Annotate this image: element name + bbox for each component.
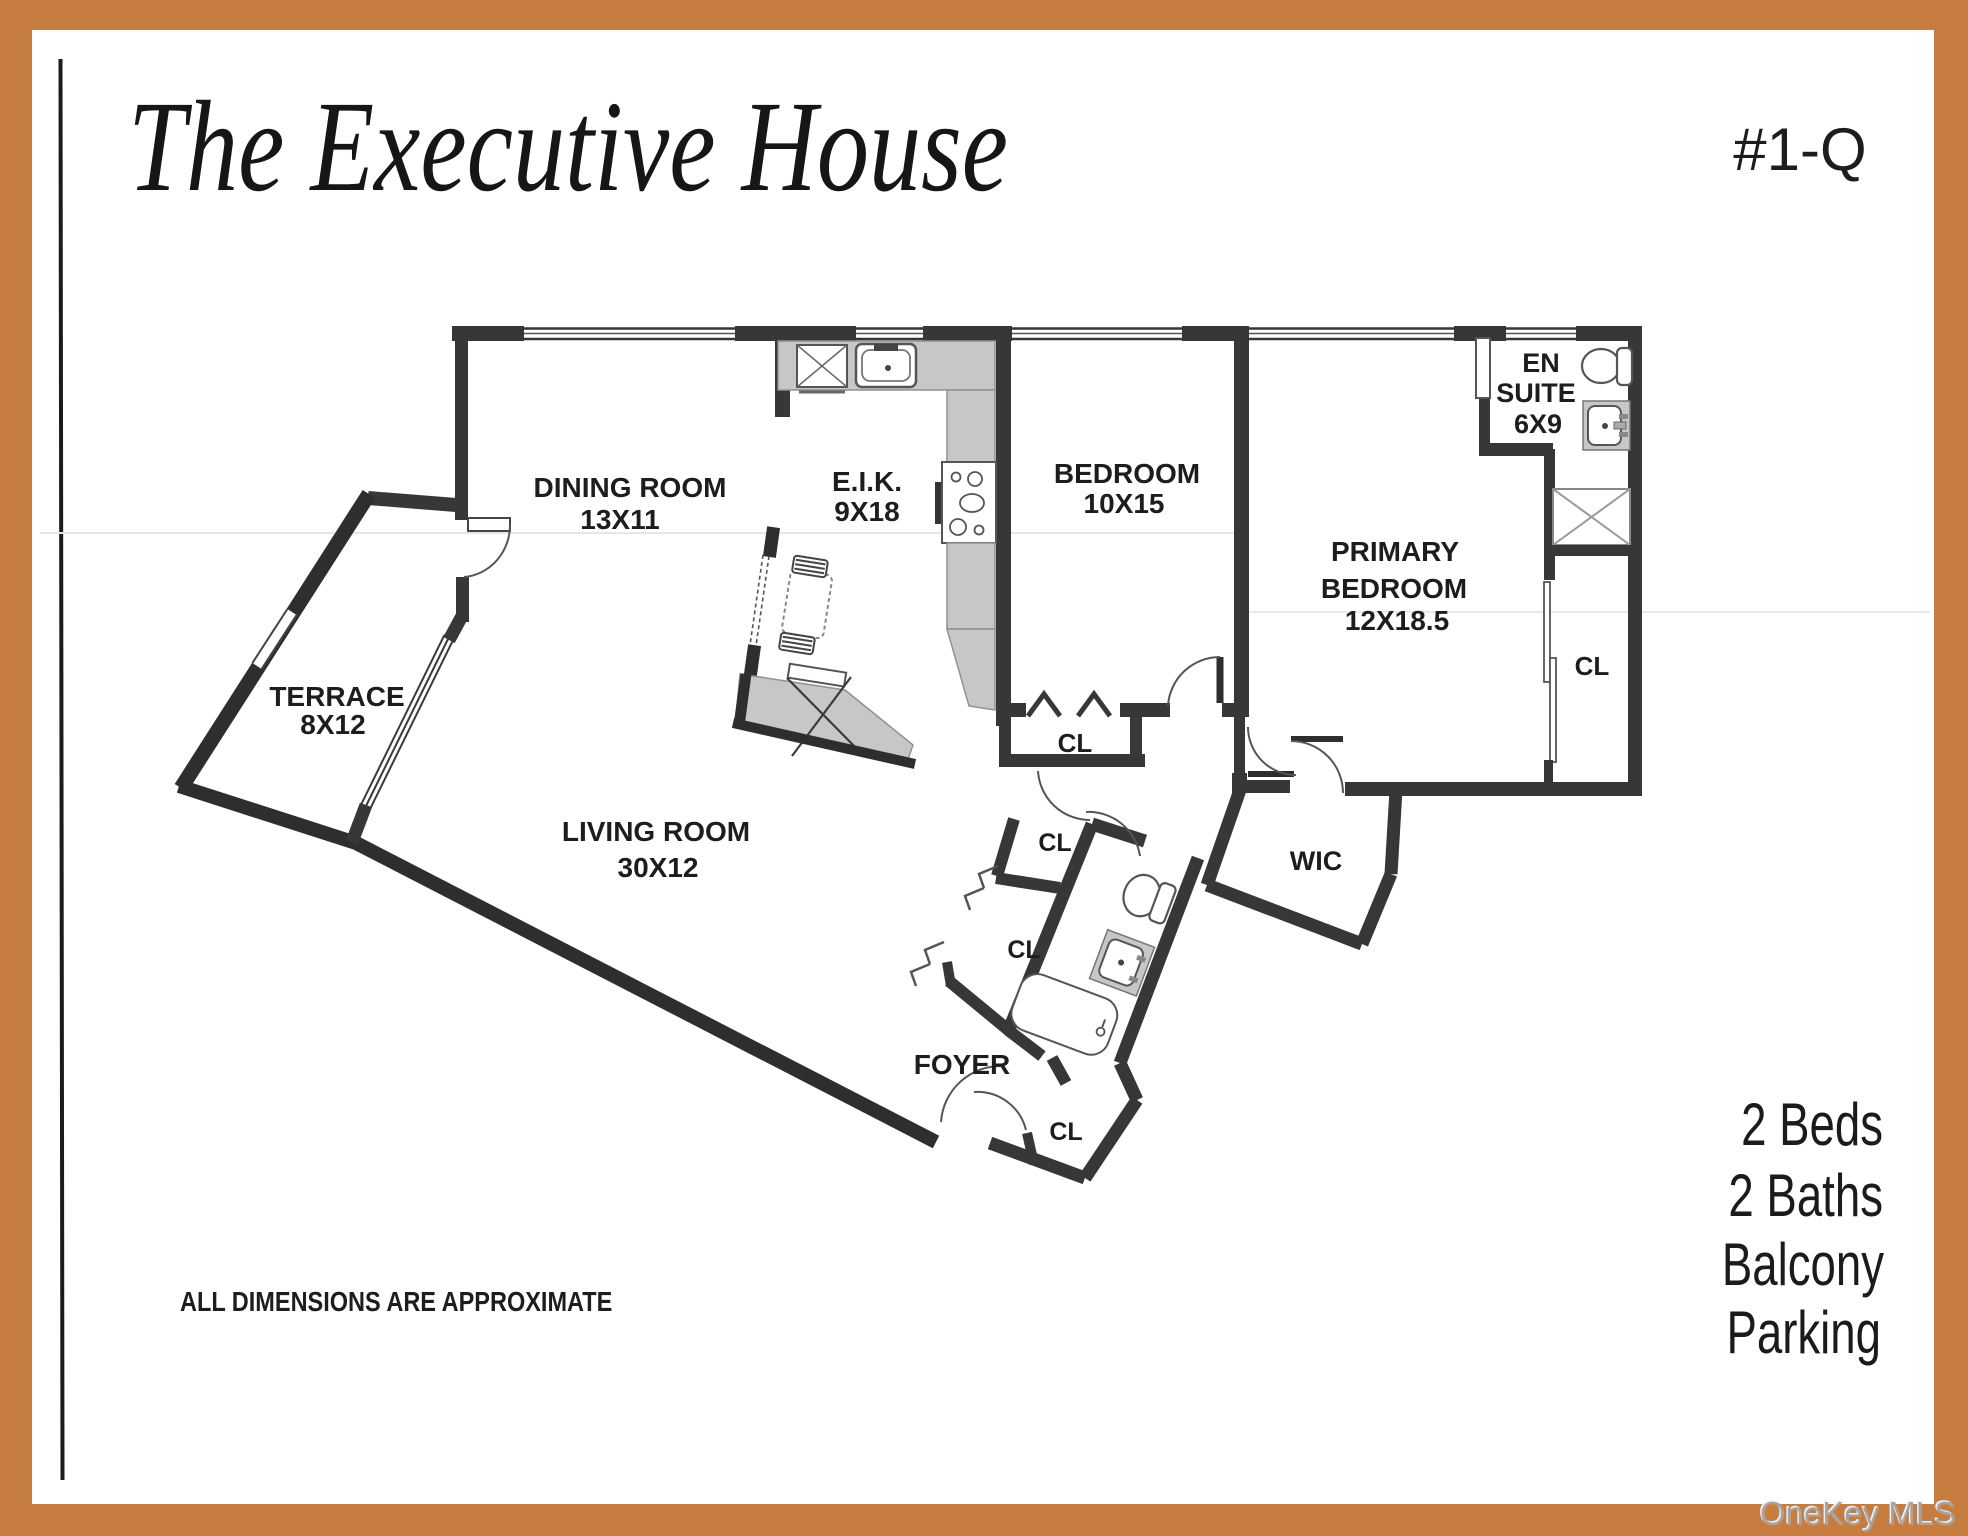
svg-text:EN: EN	[1522, 348, 1560, 378]
svg-text:BEDROOM: BEDROOM	[1321, 573, 1467, 604]
svg-text:CL: CL	[1575, 651, 1610, 681]
svg-text:#1-Q: #1-Q	[1733, 116, 1866, 183]
svg-text:DINING ROOM: DINING ROOM	[534, 472, 727, 503]
svg-text:LIVING ROOM: LIVING ROOM	[562, 816, 750, 847]
svg-text:CL: CL	[1049, 1118, 1082, 1146]
svg-text:Parking: Parking	[1726, 1300, 1881, 1366]
svg-text:30X12: 30X12	[618, 852, 699, 883]
svg-text:BEDROOM: BEDROOM	[1054, 458, 1200, 489]
svg-text:WIC: WIC	[1290, 846, 1342, 876]
svg-text:10X15: 10X15	[1084, 488, 1165, 519]
svg-text:FOYER: FOYER	[914, 1049, 1010, 1080]
svg-text:PRIMARY: PRIMARY	[1331, 536, 1459, 567]
svg-text:ALL DIMENSIONS ARE APPROXIMATE: ALL DIMENSIONS ARE APPROXIMATE	[180, 1287, 612, 1317]
svg-text:CL: CL	[1038, 829, 1071, 857]
svg-text:CL: CL	[1007, 936, 1040, 964]
svg-text:12X18.5: 12X18.5	[1345, 605, 1449, 636]
svg-text:8X12: 8X12	[300, 709, 365, 740]
svg-text:9X18: 9X18	[834, 496, 899, 527]
svg-text:CL: CL	[1058, 728, 1093, 758]
svg-text:SUITE: SUITE	[1496, 378, 1576, 408]
svg-text:Balcony: Balcony	[1722, 1232, 1884, 1298]
svg-text:The Executive House: The Executive House	[128, 75, 1008, 219]
svg-text:2 Baths: 2 Baths	[1728, 1163, 1883, 1229]
svg-text:OneKey MLS: OneKey MLS	[1760, 1495, 1956, 1532]
svg-text:6X9: 6X9	[1514, 409, 1562, 439]
svg-text:E.I.K.: E.I.K.	[832, 466, 902, 497]
svg-text:2 Beds: 2 Beds	[1741, 1092, 1883, 1158]
svg-text:TERRACE: TERRACE	[269, 681, 404, 712]
svg-text:13X11: 13X11	[580, 504, 659, 535]
